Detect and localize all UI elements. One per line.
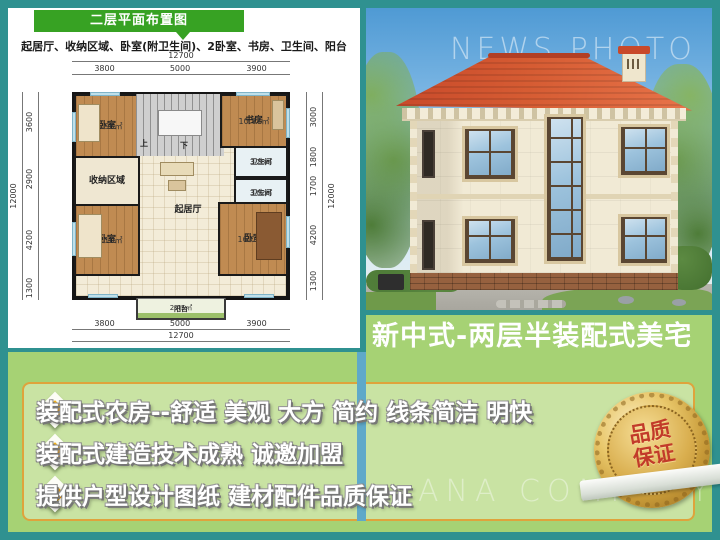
dim-right-total: 12000: [327, 178, 337, 214]
lawn: [366, 292, 436, 310]
dim-right-segment: 1300: [309, 263, 319, 299]
dim-line: [72, 329, 290, 330]
feature-text: 装配式农房--舒适 美观 大方 简约 线条简洁 明快: [36, 393, 532, 427]
window-mark: [72, 112, 76, 142]
plan-title-bar: 二层平面布置图: [34, 10, 244, 32]
stone-path: [496, 300, 566, 308]
dim-top-total: 12700: [72, 51, 290, 61]
dim-right-segment: 4200: [309, 217, 319, 253]
dim-top-segment: 3900: [223, 64, 290, 74]
outdoor-chair: [378, 274, 404, 290]
dim-line: [38, 92, 39, 300]
window-glass: [623, 129, 665, 173]
side-window: [422, 220, 435, 270]
dim-bottom-segment: 3800: [72, 319, 137, 329]
feature-text: 装配式建造技术成熟 诚邀加盟: [36, 435, 343, 469]
desk: [272, 100, 284, 130]
window-mark: [90, 92, 120, 96]
dim-left-segment: 3600: [25, 104, 35, 140]
plan-title: 二层平面布置图: [90, 13, 188, 28]
window-mark: [236, 92, 270, 96]
table: [168, 180, 186, 191]
window-mark: [244, 294, 274, 298]
banner-title: 新中式-两层半装配式美宅: [366, 314, 692, 353]
chimney-vent: [627, 59, 641, 69]
room-label: 收纳区域: [89, 176, 125, 186]
stair-up-label: 上: [140, 138, 148, 149]
quality-badge: 品质 保证: [594, 392, 710, 508]
room-area: 3.02㎡: [250, 189, 273, 197]
window: [462, 126, 518, 182]
dim-left-segment: 1300: [25, 270, 35, 306]
dim-bottom-total: 12700: [72, 331, 290, 341]
side-window: [422, 130, 435, 178]
banner: 新中式-两层半装配式美宅: [366, 315, 712, 352]
window: [618, 214, 670, 266]
chimney: [622, 52, 646, 82]
dim-left-total: 12000: [9, 178, 19, 214]
dim-bottom-segment: 5000: [137, 319, 223, 329]
house: [396, 52, 692, 292]
room-area: 3.28㎡: [250, 158, 273, 166]
room-bathroom-upper: 卫生间 3.28㎡: [234, 146, 288, 178]
dim-line: [306, 92, 307, 300]
roof-ridge: [488, 53, 590, 58]
window-mark: [286, 108, 290, 138]
sofa: [160, 162, 194, 176]
dim-line: [322, 92, 323, 300]
floorplan-drawing: 卧室 11.96㎡ 上 下 书房 10.77㎡ 卫生间 3.28㎡ 卫生间 3.…: [72, 92, 290, 300]
bed: [78, 104, 100, 142]
window-glass: [623, 219, 665, 261]
room-area: 2.45㎡: [170, 304, 193, 313]
dim-line: [22, 92, 23, 300]
dim-bottom-segment: 3900: [223, 319, 290, 329]
dim-line: [72, 341, 290, 342]
dim-top-segment: 5000: [137, 64, 223, 74]
dim-right-segment: 3000: [309, 99, 319, 135]
room-balcony: 阳台 2.45㎡: [136, 298, 226, 320]
window-mark: [286, 216, 290, 248]
stone-base: [410, 273, 678, 290]
stair-landing: [158, 110, 202, 136]
window: [462, 216, 518, 266]
house-photo: NEWS PHOTO: [366, 8, 712, 310]
rock: [672, 299, 686, 306]
staircase: 上 下: [136, 94, 224, 156]
feature-text: 提供户型设计图纸 建材配件品质保证: [36, 477, 412, 511]
dim-left-segment: 2900: [25, 161, 35, 197]
window-mark: [72, 222, 76, 256]
chimney-cap: [618, 46, 650, 54]
dim-line: [72, 61, 290, 62]
rock: [618, 296, 634, 304]
floorplan-panel: 二层平面布置图 起居厅、收纳区域、卧室(附卫生间)、2卧室、书房、卫生间、阳台 …: [8, 8, 360, 348]
window-glass: [467, 221, 513, 261]
bed: [256, 212, 282, 260]
dim-left-segment: 4200: [25, 222, 35, 258]
dim-right-segment: 1700: [309, 168, 319, 204]
room-storage: 收纳区域: [74, 156, 140, 206]
window-mark: [88, 294, 118, 298]
window-glass: [467, 131, 513, 177]
stair-down-label: 下: [180, 140, 188, 151]
feature-item: 装配式建造技术成熟 诚邀加盟: [36, 431, 686, 473]
corner-quoin: [410, 120, 417, 273]
poster: 二层平面布置图 起居厅、收纳区域、卧室(附卫生间)、2卧室、书房、卫生间、阳台 …: [0, 0, 720, 540]
window-glass: [549, 119, 581, 259]
bed: [78, 214, 102, 258]
corner-quoin: [671, 120, 678, 273]
stairwell-window: [544, 114, 586, 264]
dim-top-segment: 3800: [72, 64, 137, 74]
window: [618, 124, 670, 178]
dim-line: [72, 74, 290, 75]
room-area: 10.77㎡: [239, 117, 270, 126]
room-label: 起居厅: [174, 205, 201, 215]
